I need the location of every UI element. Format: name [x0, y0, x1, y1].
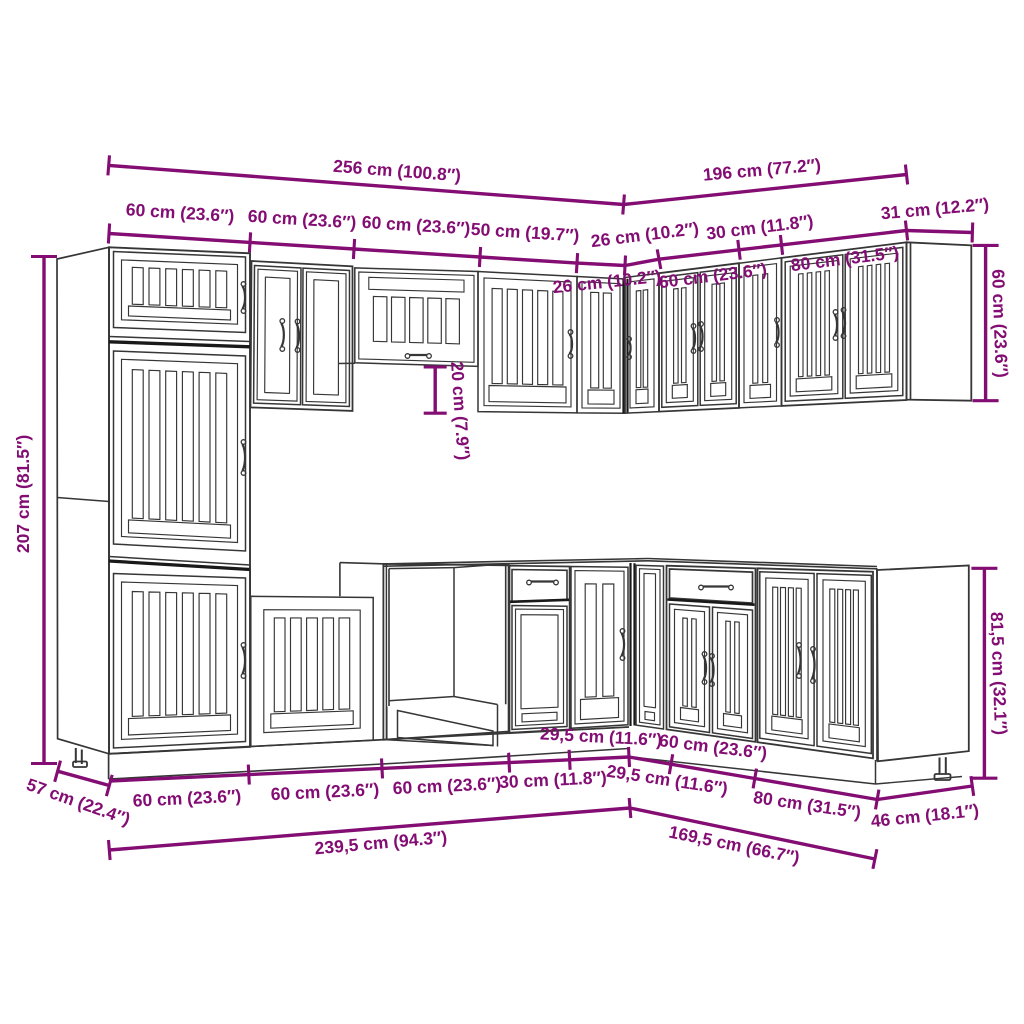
- svg-text:207 cm (81.5″): 207 cm (81.5″): [13, 435, 33, 553]
- svg-text:60 cm (23.6″): 60 cm (23.6″): [988, 269, 1012, 378]
